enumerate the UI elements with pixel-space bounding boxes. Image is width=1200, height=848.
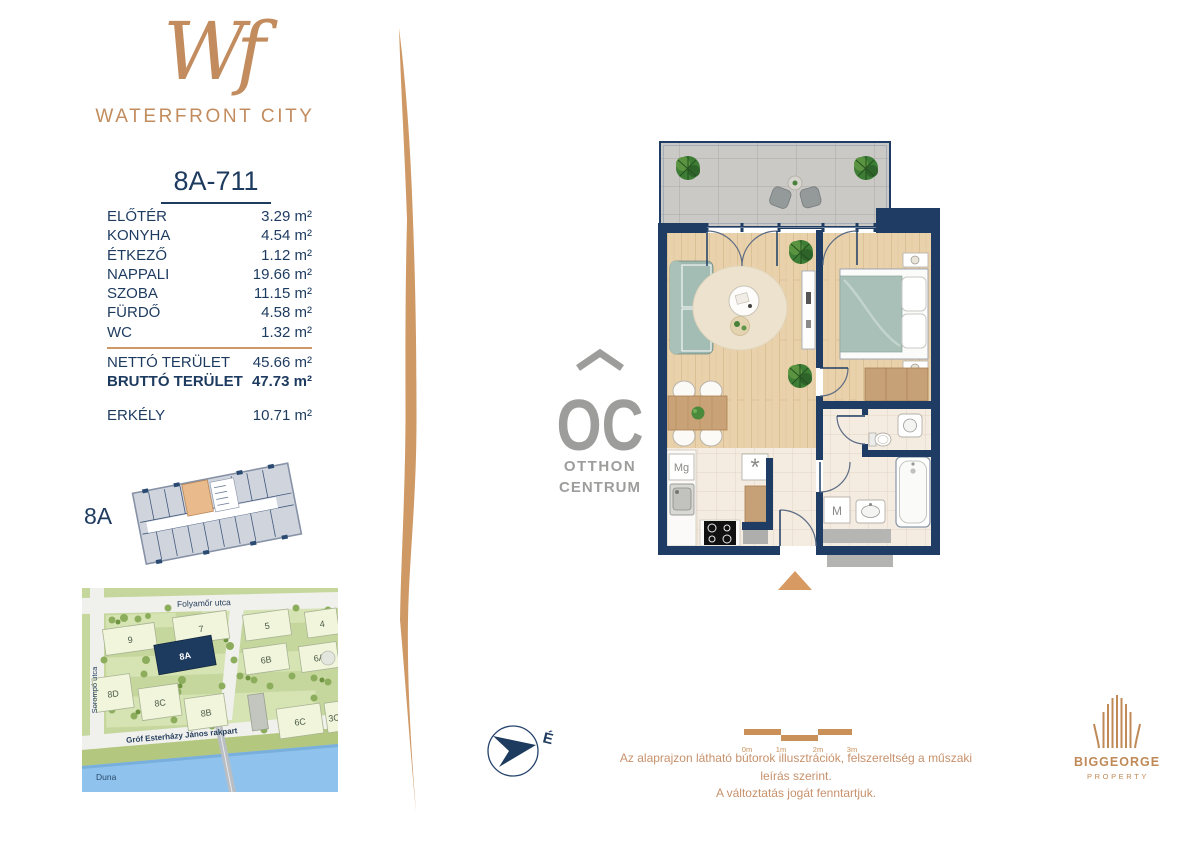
table-row: ELŐTÉR 3.29 m² (107, 207, 312, 226)
cooktop (704, 521, 736, 545)
svg-text:Mg: Mg (674, 462, 689, 474)
waterfront-logo-name: WATERFRONT CITY (88, 106, 322, 128)
disclaimer-line2: A változtatás jogát fenntartjuk. (610, 785, 982, 803)
washing-machine: M (824, 497, 850, 523)
plant-icon (676, 156, 700, 180)
waterfront-logo-monogram: Wf (115, 10, 305, 94)
table-row: KONYHA 4.54 m² (107, 226, 312, 245)
building-keyplan (118, 456, 313, 576)
svg-text:3C: 3C (328, 712, 338, 724)
oc-monogram: OC (556, 385, 643, 465)
toilet (869, 433, 891, 446)
room-name: ELŐTÉR (107, 207, 167, 226)
svg-text:8A: 8A (179, 650, 193, 662)
bed (840, 269, 928, 359)
biggeorge-name: BIGGEORGE (1074, 755, 1160, 769)
oc-chevron-icon (578, 353, 622, 368)
kitchen-sink (670, 484, 694, 515)
biggeorge-sub: PROPERTY (1087, 772, 1149, 781)
gross-label: BRUTTÓ TERÜLET (107, 372, 243, 391)
street-label-folyamor: Folyamőr utca (177, 597, 231, 609)
balcony (660, 142, 890, 227)
site-map: 9 7 5 4 8A 6B 6A 8D (82, 588, 338, 792)
plant-icon (854, 156, 878, 180)
room-name: NAPPALI (107, 265, 169, 284)
keyplan-highlighted-unit (182, 480, 214, 516)
wardrobe (865, 368, 928, 401)
room-area: 11.15 m² (254, 284, 312, 303)
tv-cabinet (802, 271, 815, 349)
disclaimer: Az alaprajzon látható bútorok illusztrác… (610, 750, 982, 803)
north-compass: É (483, 716, 573, 790)
fridge: Mg (669, 454, 694, 480)
table-row: ÉTKEZŐ 1.12 m² (107, 246, 312, 265)
svg-text:8B: 8B (200, 707, 212, 718)
biggeorge-icon (1094, 695, 1140, 748)
floorplan: Mg * M (640, 130, 960, 600)
keyplan-building-label: 8A (84, 503, 112, 530)
table-divider (107, 347, 312, 349)
unit-title: 8A-711 (161, 166, 270, 204)
room-area: 1.32 m² (261, 323, 312, 342)
north-label: É (541, 729, 555, 748)
entrance-marker-icon (778, 571, 812, 590)
biggeorge-logo: BIGGEORGE PROPERTY (1058, 690, 1178, 788)
bathroom-mat (821, 529, 891, 543)
kitchen-cabinet (745, 486, 767, 522)
gross-value: 47.73 m² (252, 372, 312, 391)
river-label-duna: Duna (96, 772, 117, 782)
svg-text:6C: 6C (294, 716, 307, 728)
bathtub (896, 457, 930, 527)
plant-icon (788, 364, 812, 388)
svg-text:*: * (750, 454, 759, 481)
svg-text:6B: 6B (260, 654, 272, 665)
net-area-row: NETTÓ TERÜLET 45.66 m² (107, 353, 312, 372)
svg-text:8D: 8D (107, 688, 120, 700)
room-area: 4.54 m² (261, 226, 312, 245)
plant-icon (789, 240, 813, 264)
map-building-6c: 6C (276, 703, 324, 739)
room-name: KONYHA (107, 226, 170, 245)
brochure-page: Wf WATERFRONT CITY 8A-711 ELŐTÉR 3.29 m²… (0, 0, 1200, 848)
room-name: SZOBA (107, 284, 158, 303)
net-label: NETTÓ TERÜLET (107, 353, 230, 372)
map-building-8c: 8C (138, 683, 182, 720)
balcony-value: 10.71 m² (253, 406, 312, 425)
table-row: SZOBA 11.15 m² (107, 284, 312, 303)
room-area: 3.29 m² (261, 207, 312, 226)
svg-text:M: M (832, 504, 842, 518)
net-value: 45.66 m² (253, 353, 312, 372)
bathroom-sink (856, 500, 885, 523)
gross-area-row: BRUTTÓ TERÜLET 47.73 m² (107, 372, 312, 391)
room-name: ÉTKEZŐ (107, 246, 167, 265)
wc-sink (898, 414, 922, 437)
balcony-area-row: ERKÉLY 10.71 m² (107, 406, 312, 425)
entry-mat (827, 555, 893, 567)
divider-wave (380, 20, 430, 820)
street-label-sorompo: Sorompó utca (90, 666, 99, 714)
map-building-6b: 6B (242, 643, 289, 675)
oc-line1: OTTHON (564, 458, 636, 475)
room-area: 1.12 m² (261, 246, 312, 265)
map-building-8b: 8B (184, 693, 228, 730)
room-name: WC (107, 323, 132, 342)
room-area: 19.66 m² (253, 265, 312, 284)
table-row: WC 1.32 m² (107, 323, 312, 342)
table-row: FÜRDŐ 4.58 m² (107, 303, 312, 322)
oc-line2: CENTRUM (559, 479, 641, 496)
room-name: FÜRDŐ (107, 303, 160, 322)
area-table: ELŐTÉR 3.29 m² KONYHA 4.54 m² ÉTKEZŐ 1.1… (107, 207, 312, 425)
unit-title-wrap: 8A-711 (116, 166, 316, 204)
kitchen-mat (743, 530, 768, 544)
balcony-label: ERKÉLY (107, 406, 165, 425)
dishwasher: * (742, 454, 768, 481)
disclaimer-line1: Az alaprajzon látható bútorok illusztrác… (610, 750, 982, 785)
svg-text:8C: 8C (154, 697, 167, 709)
room-area: 4.58 m² (261, 303, 312, 322)
map-building-4: 4 (304, 608, 338, 638)
table-row: NAPPALI 19.66 m² (107, 265, 312, 284)
